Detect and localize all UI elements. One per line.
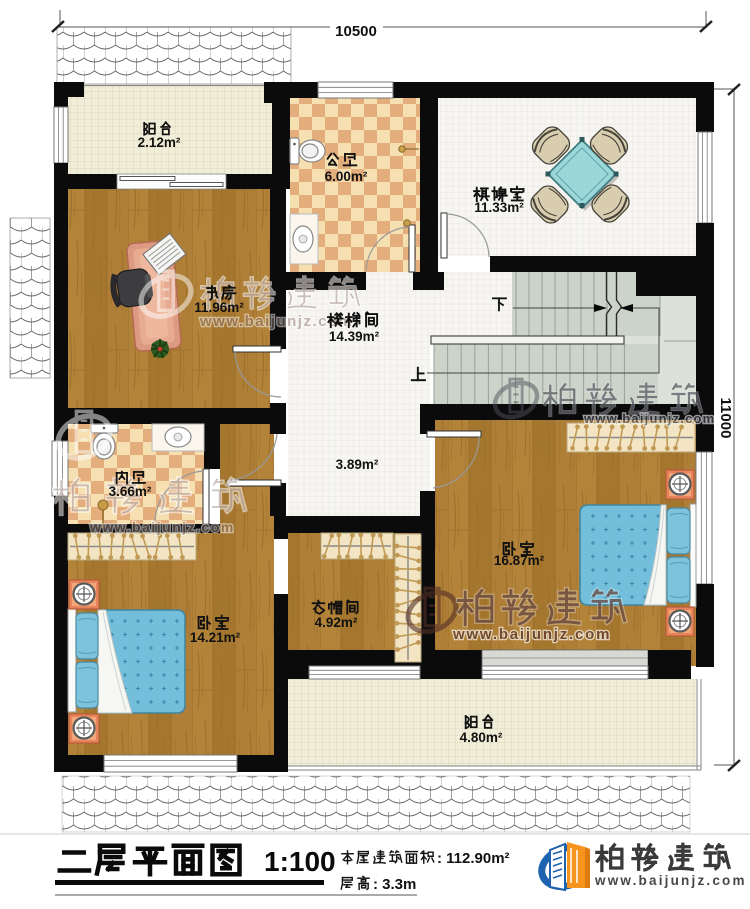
svg-text:14.21m²: 14.21m² [190, 630, 241, 645]
svg-text:3.89m²: 3.89m² [336, 457, 379, 472]
svg-text:www.baijunjz.com: www.baijunjz.com [594, 873, 747, 888]
svg-text:14.39m²: 14.39m² [329, 329, 380, 344]
svg-text:11.33m²: 11.33m² [474, 200, 524, 215]
svg-text:: 3.3m: : 3.3m [373, 876, 416, 893]
svg-text:11.96m²: 11.96m² [194, 300, 244, 315]
svg-text:: 112.90m²: : 112.90m² [437, 850, 510, 867]
svg-text:6.00m²: 6.00m² [325, 169, 368, 184]
svg-text:4.92m²: 4.92m² [315, 615, 358, 630]
svg-text:www.baijunjz.com: www.baijunjz.com [583, 411, 715, 426]
svg-text:1:100: 1:100 [264, 846, 336, 877]
svg-text:3.66m²: 3.66m² [109, 484, 152, 499]
svg-text:2.12m²: 2.12m² [138, 135, 181, 150]
svg-text:11000: 11000 [717, 398, 734, 439]
svg-text:www.baijunjz.com: www.baijunjz.com [89, 519, 235, 535]
svg-text:16.87m²: 16.87m² [494, 553, 545, 568]
svg-text:www.baijunjz.com: www.baijunjz.com [452, 626, 611, 643]
svg-text:10500: 10500 [335, 23, 377, 40]
svg-text:4.80m²: 4.80m² [460, 730, 503, 745]
